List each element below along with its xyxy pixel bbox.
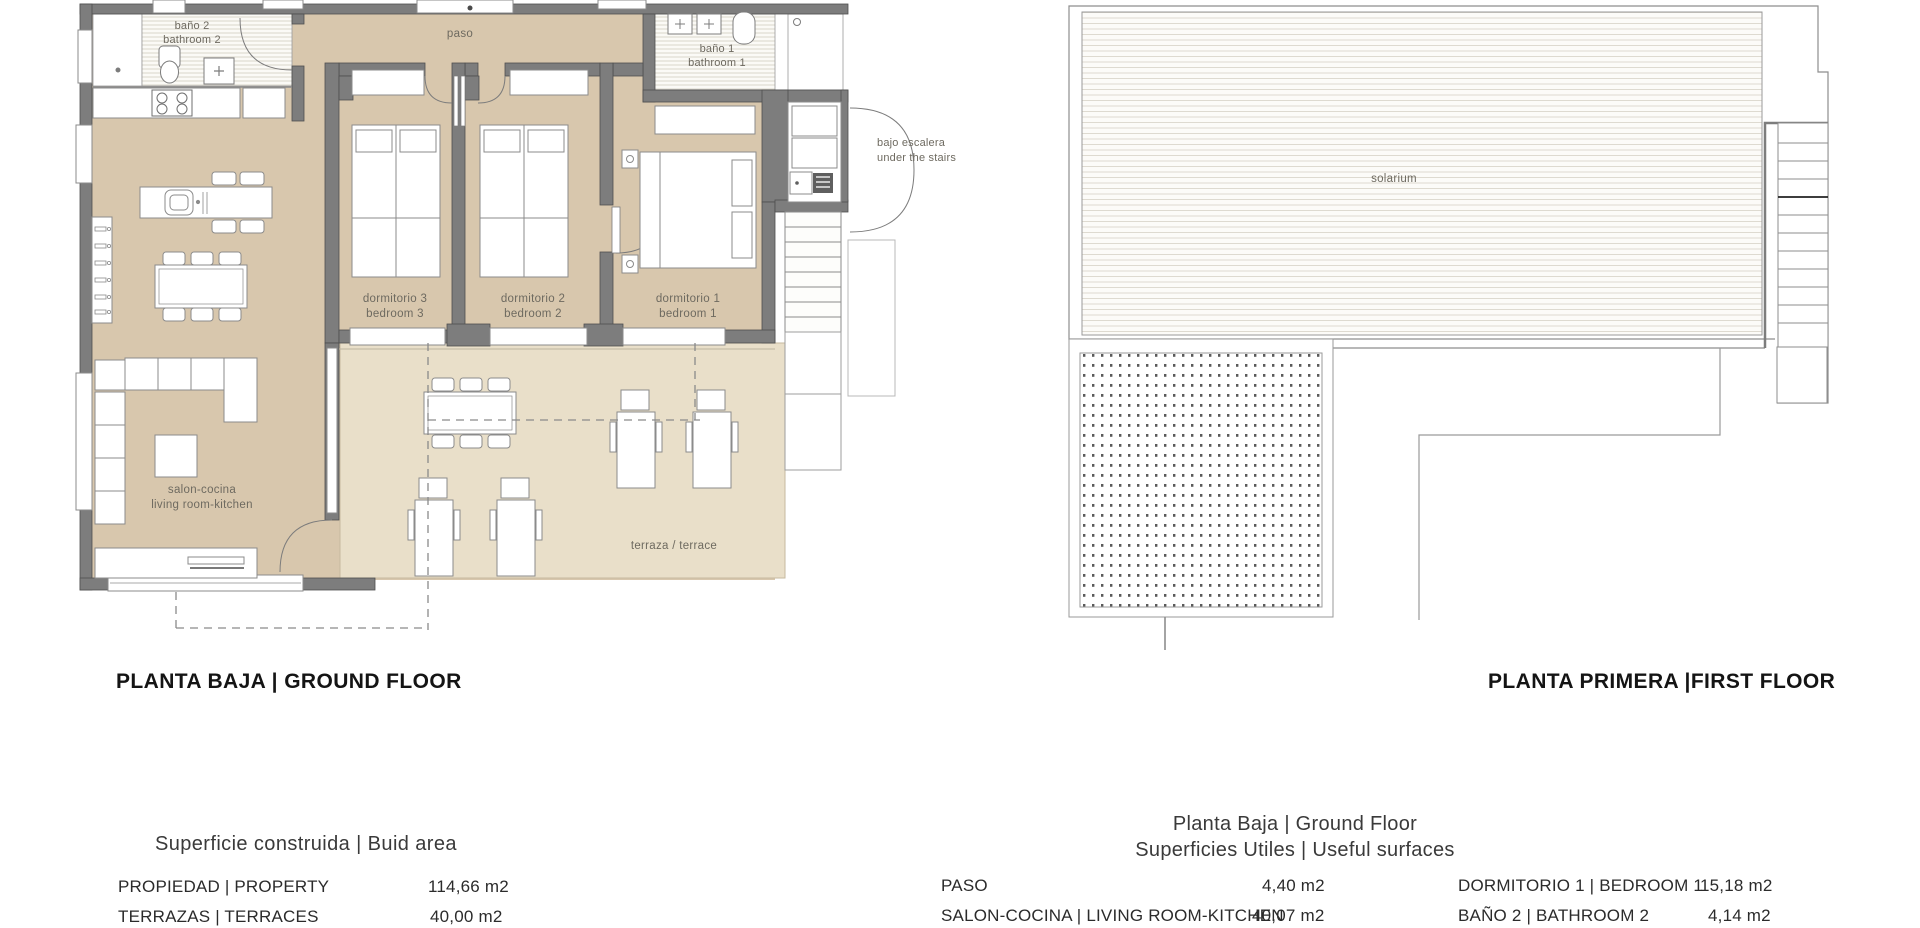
bathroom2-label: bathroom 2 [163, 34, 221, 46]
ground-floor-heading: PLANTA BAJA | GROUND FLOOR [116, 670, 462, 694]
floorplan-page: { "colors": { "wall": "#7d7d7d", "wall_s… [0, 0, 1920, 920]
chair [432, 435, 454, 448]
solarium-floor [1082, 12, 1762, 335]
ground-floor-plan: baño 2 bathroom 2 baño 1 bathroom 1 paso… [76, 0, 956, 630]
chair [191, 252, 213, 265]
paso-door-leaf [461, 76, 465, 126]
surface-row-value: 4,14 m2 [1708, 905, 1771, 927]
chair [460, 378, 482, 391]
bedroom2-label: bedroom 2 [504, 308, 562, 320]
tv [188, 557, 244, 564]
bathroom2-label: baño 2 [175, 20, 210, 32]
sofa-cushion [158, 358, 191, 390]
sofa-cushion [95, 425, 125, 458]
entrance-door [417, 0, 513, 13]
bedroom3-label: bedroom 3 [366, 308, 424, 320]
nightstand [622, 150, 638, 168]
useful-surfaces-title: Planta Baja | Ground Floor Superficies U… [1040, 811, 1550, 863]
nightstand [622, 255, 638, 273]
chair [240, 172, 264, 185]
surface-row-label: DORMITORIO 1 | BEDROOM 1 [1458, 875, 1703, 897]
shower-head [794, 19, 801, 26]
dotted-terrace [1069, 339, 1333, 650]
bedroom1-label: bedroom 1 [659, 308, 717, 320]
sofa-cushion [95, 458, 125, 491]
built-area-row-value: 40,00 m2 [430, 906, 502, 928]
closet [655, 106, 755, 134]
pillow [484, 130, 520, 152]
terrace-label: terraza / terrace [631, 540, 717, 552]
paso-label: paso [447, 28, 473, 40]
svg-text:bajo escalera: bajo escalera [877, 137, 946, 149]
surface-row-label: BAÑO 2 | BATHROOM 2 [1458, 905, 1649, 927]
chair [240, 220, 264, 233]
closet [352, 70, 424, 95]
sofa-cushion [95, 392, 125, 425]
chair [163, 308, 185, 321]
chair [488, 435, 510, 448]
svg-text:under the stairs: under the stairs [877, 152, 956, 164]
pillow [528, 130, 564, 152]
shelf [792, 106, 837, 136]
appliance [813, 173, 833, 193]
bedroom1-label: dormitorio 1 [656, 293, 720, 305]
pillow [356, 130, 392, 152]
chair [219, 252, 241, 265]
wine-rack [92, 217, 112, 323]
living-label: living room-kitchen [151, 499, 253, 511]
sofa-cushion [95, 491, 125, 524]
dining-table [155, 265, 247, 308]
sofa-armrest [95, 360, 125, 390]
shower-drain [116, 68, 120, 72]
paso-door-leaf [454, 76, 458, 126]
fridge [243, 88, 285, 118]
chair [163, 252, 185, 265]
toilet [733, 12, 755, 44]
solarium-label: solarium [1371, 173, 1417, 185]
ground-stairs [785, 212, 895, 470]
sofa-cushion [125, 358, 158, 390]
sofa-cushion [191, 358, 224, 390]
shelf [792, 138, 837, 168]
property-boundary [1419, 348, 1720, 620]
bedroom3-label: dormitorio 3 [363, 293, 427, 305]
under-stairs-closet [788, 102, 841, 202]
pillow [732, 160, 752, 206]
chair [432, 378, 454, 391]
stair-landing [1777, 347, 1827, 403]
built-area-title: Superficie construida | Buid area [155, 833, 457, 856]
pillow [400, 130, 436, 152]
built-area-row-label: PROPIEDAD | PROPERTY [118, 876, 329, 898]
chair [212, 220, 236, 233]
surface-row-value: 40,07 m2 [1252, 905, 1324, 927]
bedroom2-label: dormitorio 2 [501, 293, 565, 305]
useful-surfaces-title-line2: Superficies Utiles | Useful surfaces [1040, 837, 1550, 863]
first-floor-stairs [1765, 123, 1828, 403]
island-sink [165, 190, 193, 215]
useful-surfaces-title-line1: Planta Baja | Ground Floor [1040, 811, 1550, 837]
b1-door-leaf [612, 207, 620, 253]
chair [460, 435, 482, 448]
surface-row-label: SALON-COCINA | LIVING ROOM-KITCHEN [941, 905, 1284, 927]
outdoor-landing [848, 240, 895, 396]
chair [219, 308, 241, 321]
first-floor-plan: solarium [1069, 6, 1828, 650]
bathroom1-label: bathroom 1 [688, 57, 746, 69]
sofa-corner [224, 358, 257, 422]
closet [510, 70, 588, 95]
surface-row-label: PASO [941, 875, 988, 897]
under-stairs-label: bajo escalera under the stairs [877, 137, 956, 164]
chair [191, 308, 213, 321]
shower-room-floor [93, 14, 142, 86]
surface-row-value: 4,40 m2 [1262, 875, 1325, 897]
terrace-table [424, 392, 516, 434]
chair [212, 172, 236, 185]
bathroom1-label: baño 1 [700, 43, 735, 55]
floorplans-canvas: baño 2 bathroom 2 baño 1 bathroom 1 paso… [0, 0, 1920, 660]
coffee-table [155, 435, 197, 477]
pillow [732, 212, 752, 258]
door-handle-dot [468, 6, 473, 11]
built-area-row-label: TERRAZAS | TERRACES [118, 906, 319, 928]
living-label: salon-cocina [168, 484, 236, 496]
kitchen [93, 88, 285, 118]
first-floor-heading: PLANTA PRIMERA |FIRST FLOOR [1488, 670, 1835, 694]
stair-landing [785, 332, 841, 470]
kitchen-island [140, 187, 272, 218]
chair [488, 378, 510, 391]
built-area-row-value: 114,66 m2 [428, 876, 509, 898]
surface-row-value: 15,18 m2 [1700, 875, 1772, 897]
